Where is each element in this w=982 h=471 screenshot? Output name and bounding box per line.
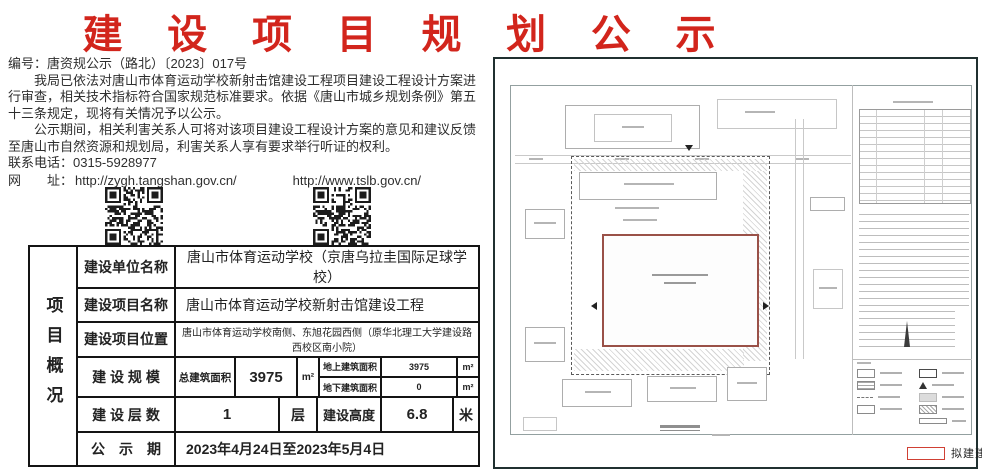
legend-row bbox=[857, 403, 909, 415]
entrance-arrow-west bbox=[591, 302, 597, 310]
table-row-location: 建设项目位置 唐山市体育运动学校南侧、东旭花园西侧（原华北理工大学建设路西校区南… bbox=[78, 323, 478, 355]
neighbour-building-west-1 bbox=[525, 209, 565, 239]
qr-code-left bbox=[105, 187, 163, 245]
total-area-value: 3975 bbox=[236, 358, 296, 397]
row-label: 建 设 规 模 bbox=[78, 358, 174, 397]
below-ground-value: 0 bbox=[382, 378, 456, 396]
existing-building-label bbox=[615, 207, 659, 209]
above-ground-unit: m² bbox=[458, 358, 478, 376]
east-road-line bbox=[795, 119, 796, 359]
neighbour-building-south-1 bbox=[562, 379, 632, 407]
notice-paragraph-1: 我局已依法对唐山市体育运动学校新射击馆建设工程项目建设工程设计方案进行审查，相关… bbox=[8, 73, 486, 123]
period-value: 2023年4月24日至2023年5月4日 bbox=[176, 433, 478, 465]
notes-block bbox=[859, 214, 969, 306]
row-label: 建 设 层 数 bbox=[78, 398, 174, 430]
proposed-building-legend: 拟建建筑 bbox=[907, 445, 982, 461]
hatch-strip-top bbox=[574, 159, 767, 171]
legend-row bbox=[919, 367, 971, 379]
neighbour-building-west-3 bbox=[523, 417, 557, 431]
entrance-arrow-east bbox=[763, 302, 769, 310]
legend-row bbox=[857, 379, 909, 391]
table-row-floors: 建 设 层 数 1 层 建设高度 6.8 米 bbox=[78, 398, 478, 430]
proposed-building-swatch bbox=[907, 447, 945, 460]
legend-row bbox=[919, 391, 971, 403]
proposed-building-legend-label: 拟建建筑 bbox=[951, 445, 982, 461]
proposed-building bbox=[602, 234, 759, 347]
website-line: 网 址： http://zygh.tangshan.gov.cn/ http:/… bbox=[8, 173, 486, 190]
indicator-table bbox=[859, 109, 971, 204]
qr-code-right bbox=[313, 187, 371, 245]
legend-row bbox=[857, 391, 909, 403]
table-row-project: 建设项目名称 唐山市体育运动学校新射击馆建设工程 bbox=[78, 289, 478, 321]
entrance-arrow-north bbox=[685, 145, 693, 151]
sports-field bbox=[565, 105, 700, 149]
height-label: 建设高度 bbox=[318, 398, 380, 430]
road-dim bbox=[795, 158, 809, 160]
road-label bbox=[745, 111, 775, 113]
floors-unit: 层 bbox=[280, 398, 316, 430]
existing-building-label bbox=[623, 219, 657, 221]
above-ground-label: 地上建筑面积 bbox=[320, 358, 380, 376]
notice-text-block: 编号：唐资规公示（路北）〔2023〕017号 我局已依法对唐山市体育运动学校新射… bbox=[8, 56, 486, 189]
table-row-scale: 建 设 规 模 总建筑面积 3975 m² 地上建筑面积 3975 m² 地下建… bbox=[78, 358, 478, 397]
frame-divider-vertical bbox=[852, 85, 853, 435]
frame-divider-horizontal bbox=[852, 359, 972, 360]
height-unit: 米 bbox=[454, 398, 478, 430]
row-label: 建设单位名称 bbox=[78, 247, 174, 287]
row-value: 唐山市体育运动学校新射击馆建设工程 bbox=[176, 289, 478, 321]
below-ground-unit: m² bbox=[458, 378, 478, 396]
above-ground-value: 3975 bbox=[382, 358, 456, 376]
hatch-strip-bottom bbox=[574, 349, 744, 371]
project-overview-table: 项目概况 建设单位名称 唐山市体育运动学校（京唐乌拉圭国际足球学校） 建设项目名… bbox=[28, 245, 480, 467]
plan-caption bbox=[660, 425, 770, 436]
row-value: 唐山市体育运动学校（京唐乌拉圭国际足球学校） bbox=[176, 247, 478, 287]
east-block-2 bbox=[813, 269, 843, 309]
existing-building bbox=[579, 172, 717, 200]
page-title: 建 设 项 目 规 划 公 示 bbox=[0, 2, 815, 60]
contact-phone: 联系电话：0315-5928977 bbox=[8, 155, 486, 172]
neighbour-building-south-2 bbox=[647, 376, 717, 402]
website-label: 网 址： bbox=[8, 173, 73, 190]
total-area-unit: m² bbox=[298, 358, 318, 397]
row-value: 唐山市体育运动学校南侧、东旭花园西侧（原华北理工大学建设路西校区南小院） bbox=[176, 323, 478, 355]
above-ground-row: 地上建筑面积 3975 m² bbox=[320, 358, 478, 376]
floors-value: 1 bbox=[176, 398, 278, 430]
legend-row bbox=[857, 367, 909, 379]
neighbour-building-west-2 bbox=[525, 327, 565, 362]
notice-number: 编号：唐资规公示（路北）〔2023〕017号 bbox=[8, 56, 486, 73]
legend-row bbox=[919, 415, 971, 427]
legend-row bbox=[919, 379, 971, 391]
below-ground-row: 地下建筑面积 0 m² bbox=[320, 378, 478, 396]
row-label: 建设项目名称 bbox=[78, 289, 174, 321]
north-arrow-icon bbox=[904, 321, 910, 347]
legend-row bbox=[919, 403, 971, 415]
plan-legend bbox=[857, 362, 971, 432]
road-dim bbox=[529, 158, 543, 160]
height-value: 6.8 bbox=[382, 398, 452, 430]
site-plan-drawing: 拟建建筑 bbox=[495, 59, 976, 467]
total-area-label: 总建筑面积 bbox=[176, 358, 234, 397]
site-plan-panel: 拟建建筑 bbox=[493, 57, 978, 469]
below-ground-label: 地下建筑面积 bbox=[320, 378, 380, 396]
indicator-table-title bbox=[893, 101, 933, 103]
east-block bbox=[810, 197, 845, 211]
row-label: 建设项目位置 bbox=[78, 323, 174, 355]
table-row-unit: 建设单位名称 唐山市体育运动学校（京唐乌拉圭国际足球学校） bbox=[78, 247, 478, 287]
notice-paragraph-2: 公示期间，相关利害关系人可将对该项目建设工程设计方案的意见和建议反馈至唐山市自然… bbox=[8, 122, 486, 155]
neighbour-building-south-3 bbox=[727, 367, 767, 401]
row-label: 公 示 期 bbox=[78, 433, 174, 465]
table-side-label: 项目概况 bbox=[30, 247, 76, 465]
east-road-line bbox=[803, 119, 804, 359]
north-road-block bbox=[717, 99, 837, 129]
table-row-period: 公 示 期 2023年4月24日至2023年5月4日 bbox=[78, 433, 478, 465]
